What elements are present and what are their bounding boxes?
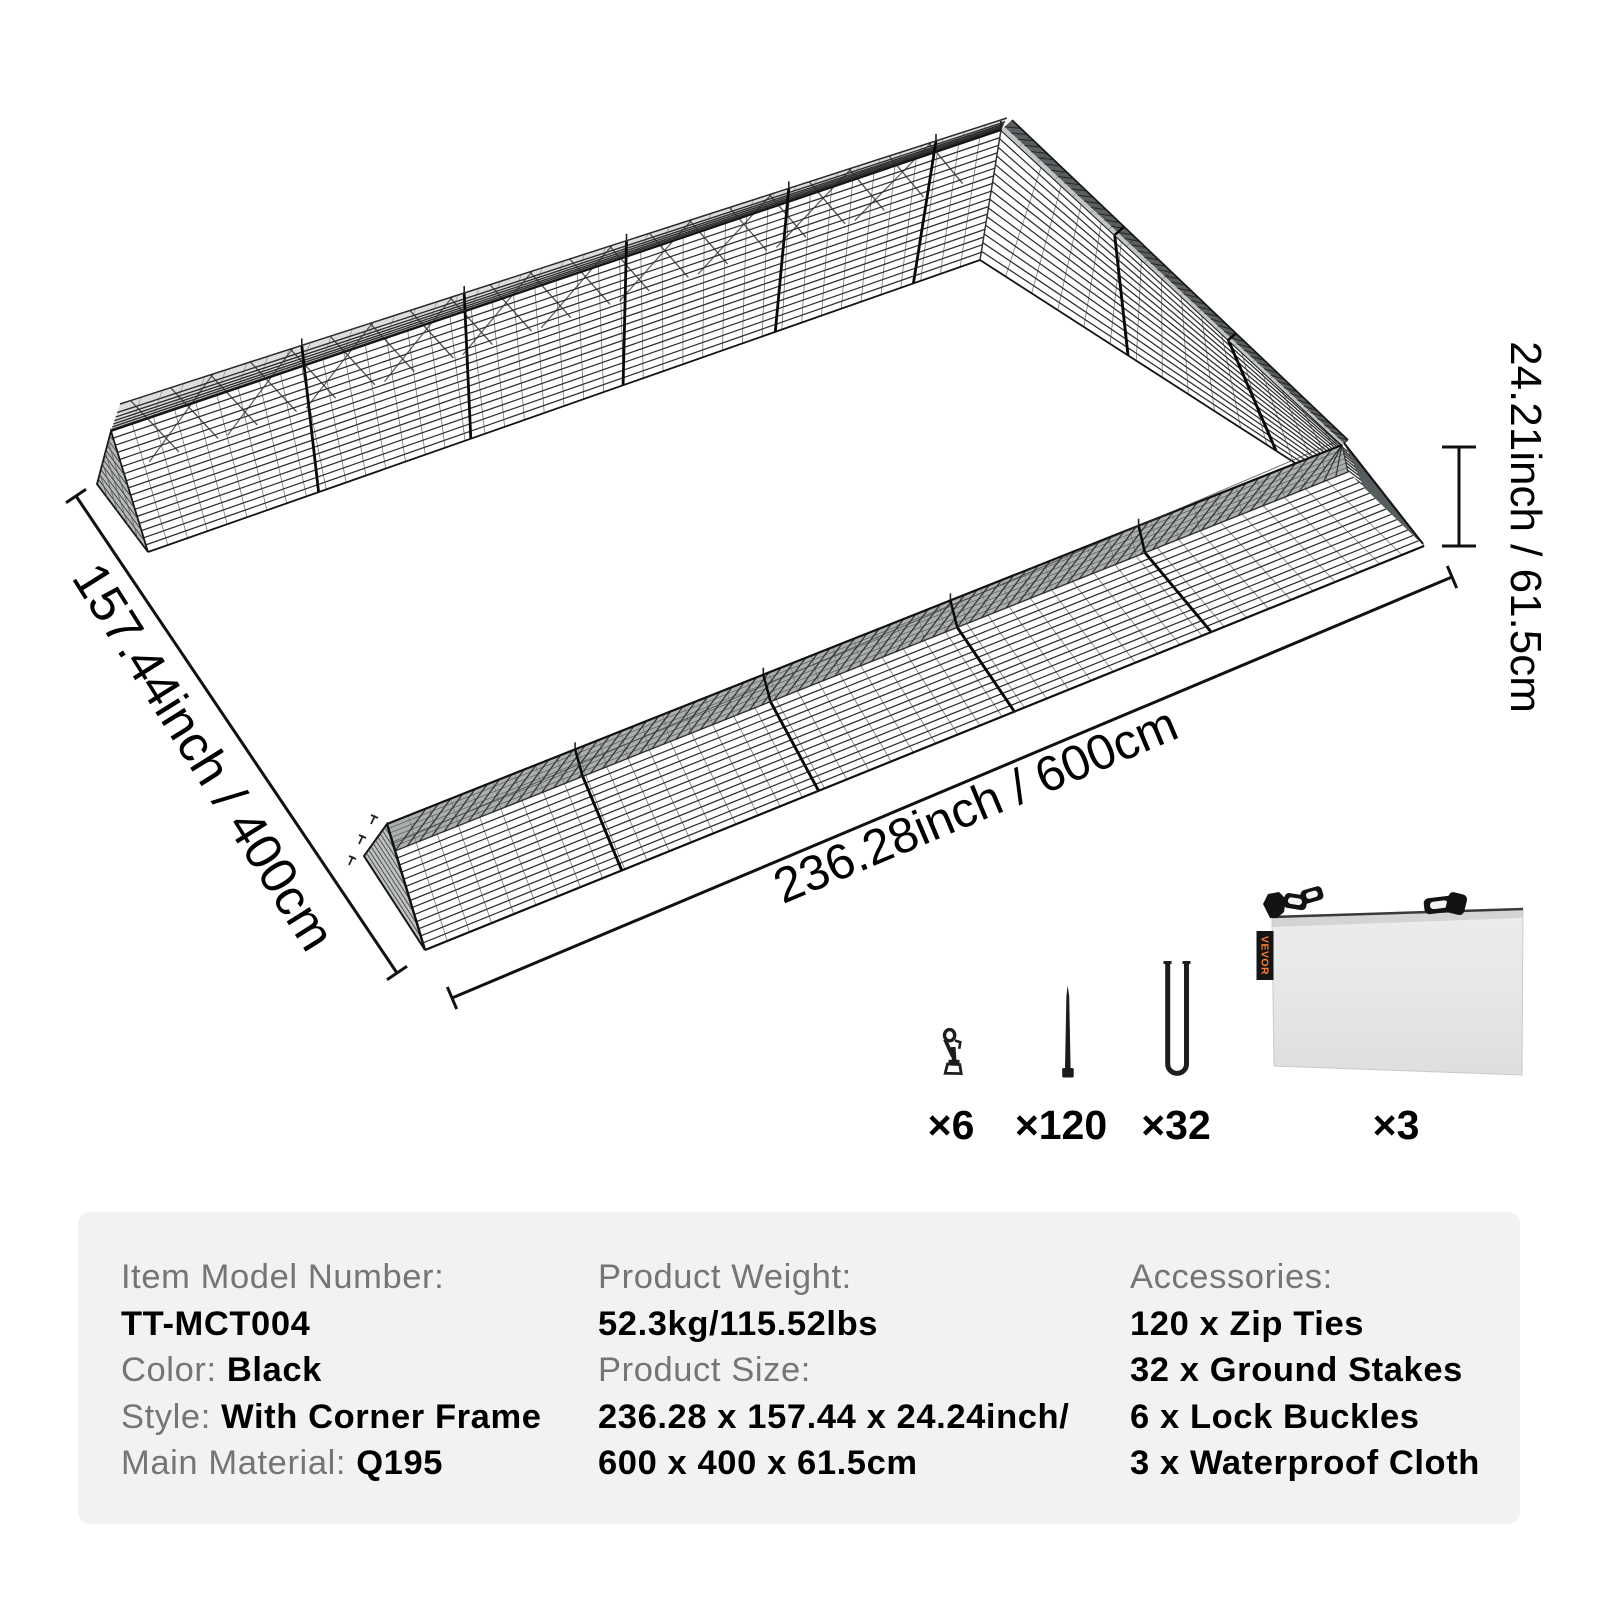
svg-text:×3: ×3 — [1373, 1102, 1420, 1148]
svg-text:157.44inch / 400cm: 157.44inch / 400cm — [61, 553, 346, 960]
svg-text:VEVOR: VEVOR — [1259, 936, 1271, 975]
svg-text:24.21inch / 61.5cm: 24.21inch / 61.5cm — [1501, 341, 1550, 713]
svg-text:×120: ×120 — [1015, 1102, 1107, 1148]
svg-text:×32: ×32 — [1141, 1102, 1211, 1148]
svg-text:×6: ×6 — [928, 1102, 975, 1148]
